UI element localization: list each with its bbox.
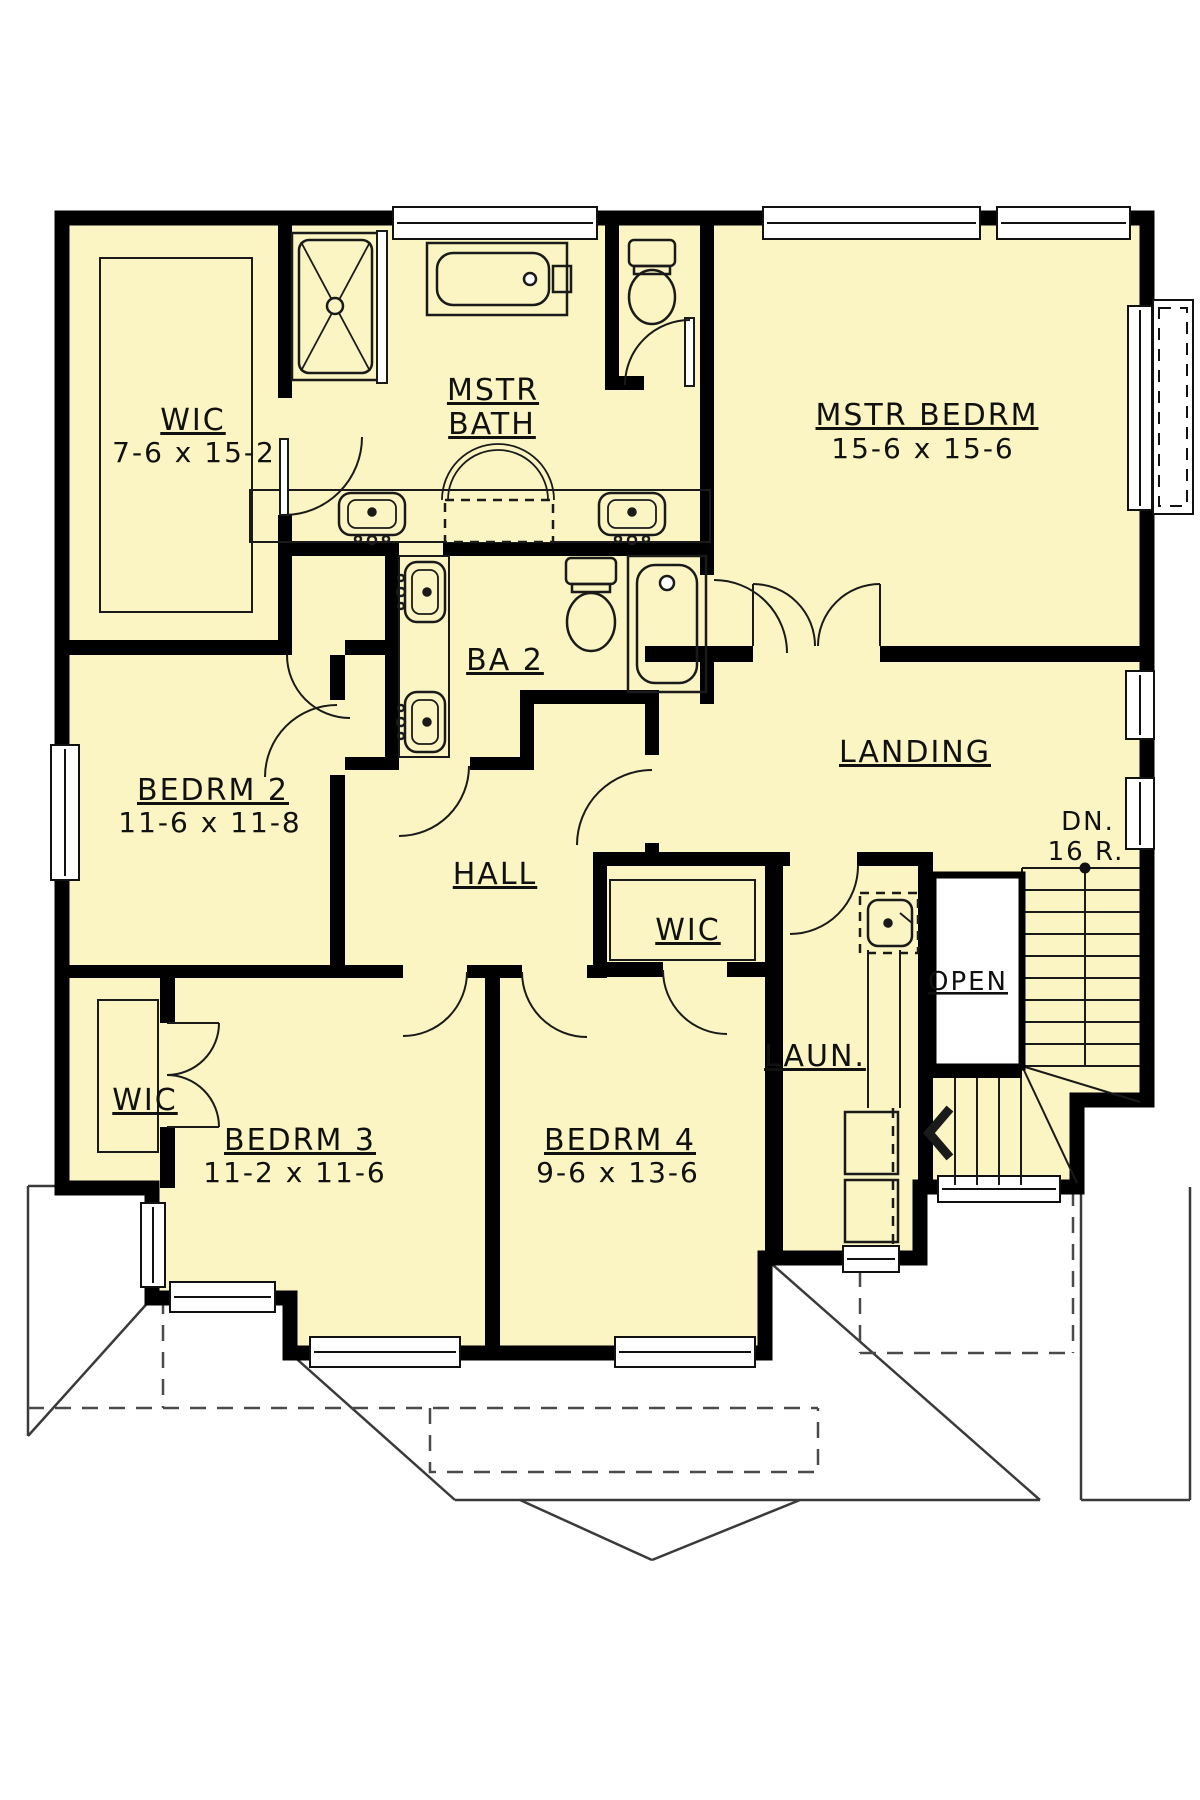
label-stair-down: DN. [1061,807,1115,837]
vanity-makeup-desk [445,500,553,542]
window-bedroom3-south-1 [170,1282,275,1312]
window-bedroom4-south [615,1337,755,1367]
wall-master-bedroom-south-left [645,646,753,662]
wall-bedroom2-north-west [62,640,287,655]
label-master-wic: WIC [160,403,225,438]
wall-master-wic-east-lower [278,515,292,655]
wall-landing-south-east [857,852,933,866]
window-bedroom3-west [141,1203,165,1287]
wall-linen-south [345,757,385,770]
dims-master-wic: 7-6 x 15-2 [112,436,276,469]
window-master-bedroom-north-1 [763,207,980,239]
label-master-bath-line2: BATH [448,407,536,442]
label-bath2: BA 2 [466,643,544,678]
wall-bedroom2-east-upper [330,655,345,700]
label-landing: LANDING [839,735,991,770]
wall-hall-south-mid [467,965,522,978]
roof-hip-line [28,1298,152,1436]
window-master-bath [393,207,597,239]
wall-master-bedroom-west-upper [700,218,714,575]
wall-bedroom3-wic-east-upper [160,978,175,1023]
shower-glass-door [377,231,387,383]
wall-bath2-south-east [470,757,534,770]
wall-bedroom3-bedroom4 [485,978,500,1353]
window-laundry-south [843,1246,899,1272]
label-master-bath-line1: MSTR [447,373,539,408]
window-master-bedroom-bay [1128,300,1193,514]
dims-master-bedroom: 15-6 x 15-6 [831,432,1014,465]
wall-hall-wic-west [593,852,607,978]
label-stair-risers: 16 R. [1048,837,1125,867]
label-hall: HALL [453,857,538,892]
wall-hall-wic-north [593,852,765,866]
label-bedroom3-wic: WIC [112,1083,177,1118]
wall-toilet-room-west [605,218,619,390]
label-master-bedroom: MSTR BEDRM [816,398,1039,433]
window-landing-east-1 [1126,671,1154,739]
roof-gable-line [652,1500,800,1560]
roof-hip-line [765,1258,1040,1500]
wall-master-wic-east-upper [278,218,292,398]
roof-dashed-dormer [430,1408,818,1472]
label-bedroom4: BEDRM 4 [544,1123,696,1158]
window-landing-east-2 [1126,778,1154,849]
dims-bedroom3: 11-2 x 11-6 [203,1156,386,1189]
wall-bath2-west [385,556,399,770]
tub-drain [660,576,674,590]
label-stair-open: OPEN [928,967,1008,997]
wall-hall-south-west [62,965,403,978]
label-bedroom3: BEDRM 3 [224,1123,376,1158]
wall-hall-wic-south-right [727,962,765,977]
label-hall-wic: WIC [655,913,720,948]
window-bedroom3-south-2 [310,1337,460,1367]
window-bedroom2-west [51,745,79,880]
window-master-bedroom-north-2 [997,207,1130,239]
tub-drain [524,273,536,285]
roof-gable-line [520,1500,652,1560]
floor-plan-drawing: WIC 7-6 x 15-2 MSTR BATH MSTR BEDRM 15-6… [0,0,1200,1800]
wall-master-bedroom-south-right [880,646,1147,662]
wall-bedroom3-wic-east-lower [160,1127,175,1188]
label-bedroom2: BEDRM 2 [137,773,289,808]
floor-plan-page: WIC 7-6 x 15-2 MSTR BATH MSTR BEDRM 15-6… [0,0,1200,1800]
dims-bedroom4: 9-6 x 13-6 [536,1156,700,1189]
label-laundry: LAUN. [764,1039,866,1074]
wall-bedroom2-north-east [345,640,400,655]
wall-bedroom2-east-lower [330,775,345,965]
wall-landing-south-stub [765,852,790,866]
dims-bedroom2: 11-6 x 11-8 [118,806,301,839]
wall-vanity-south-east [443,542,710,556]
roof-hip-line [290,1353,455,1500]
wall-hall-wic-south-left [593,962,663,977]
wall-toilet-room-south-stub [619,376,644,390]
wall-vanity-south-west [283,542,399,556]
